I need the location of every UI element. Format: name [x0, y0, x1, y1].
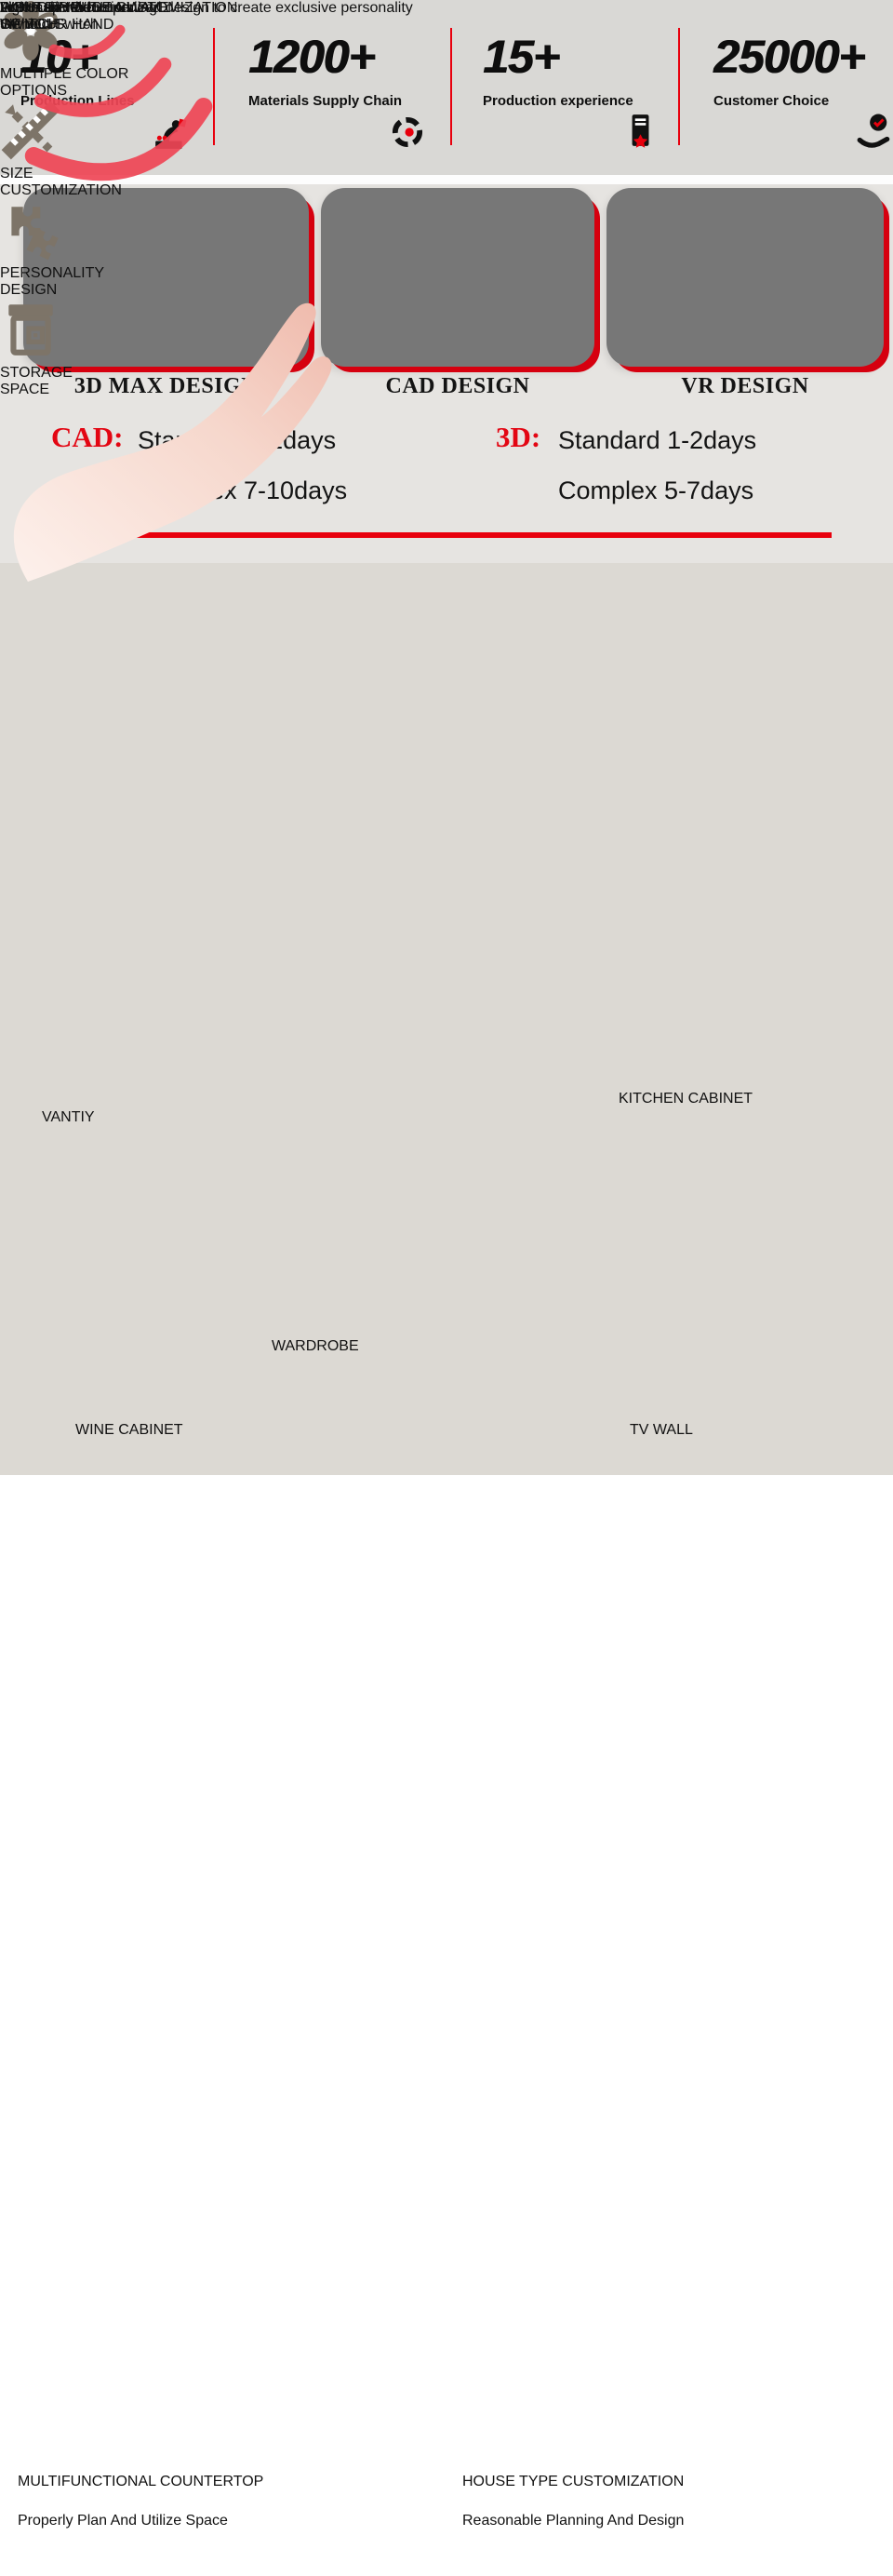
category-label-tv-wall: TV WALL [630, 1422, 693, 1439]
3d-standard-time: Standard 1-2days [558, 426, 756, 455]
stat-value: 25000+ [713, 34, 890, 80]
stat-label: Production experience [483, 93, 678, 109]
category-label-wardrobe: WARDROBE [272, 1338, 359, 1355]
caption-house-type-customization: HOUSE TYPE CUSTOMIZATION [462, 2474, 891, 2490]
hand-illustration [0, 219, 391, 596]
customer-choice-icon [856, 112, 893, 149]
stat-value: 15+ [483, 34, 678, 80]
product-detail-page: 10+ Production Lines 1200+ Materials Sup… [0, 0, 893, 2576]
note-automatic-induction: Automatic InductionWithout Switch [0, 0, 131, 34]
stats-divider [678, 28, 680, 145]
caption-subtitle: Reasonable Planning And Design [462, 2513, 891, 2529]
category-label-wine-cabinet: WINE CABINET [75, 1422, 183, 1439]
category-label-vanity: VANTIY [42, 1109, 95, 1126]
photo-induction-lighting [0, 0, 391, 596]
photo-vr-design [606, 188, 884, 367]
supply-chain-icon [389, 114, 426, 151]
stat-label: Customer Choice [713, 93, 890, 109]
caption-multifunctional-countertop: MULTIFUNCTIONAL COUNTERTOP [18, 2474, 442, 2490]
3d-schedule-label: 3D: [496, 421, 540, 454]
stat-production-experience: 15+ Production experience [483, 34, 678, 109]
3d-complex-time: Complex 5-7days [558, 476, 753, 505]
stat-customer-choice: 25000+ Customer Choice [713, 34, 890, 109]
category-label-kitchen-cabinet: KITCHEN CABINET [619, 1091, 753, 1107]
design-card-label: VR DESIGN [606, 374, 884, 399]
production-experience-icon [621, 112, 659, 149]
stats-divider [450, 28, 452, 145]
caption-subtitle: Properly Plan And Utilize Space [18, 2513, 442, 2529]
whole-house-section-background [0, 563, 893, 1475]
